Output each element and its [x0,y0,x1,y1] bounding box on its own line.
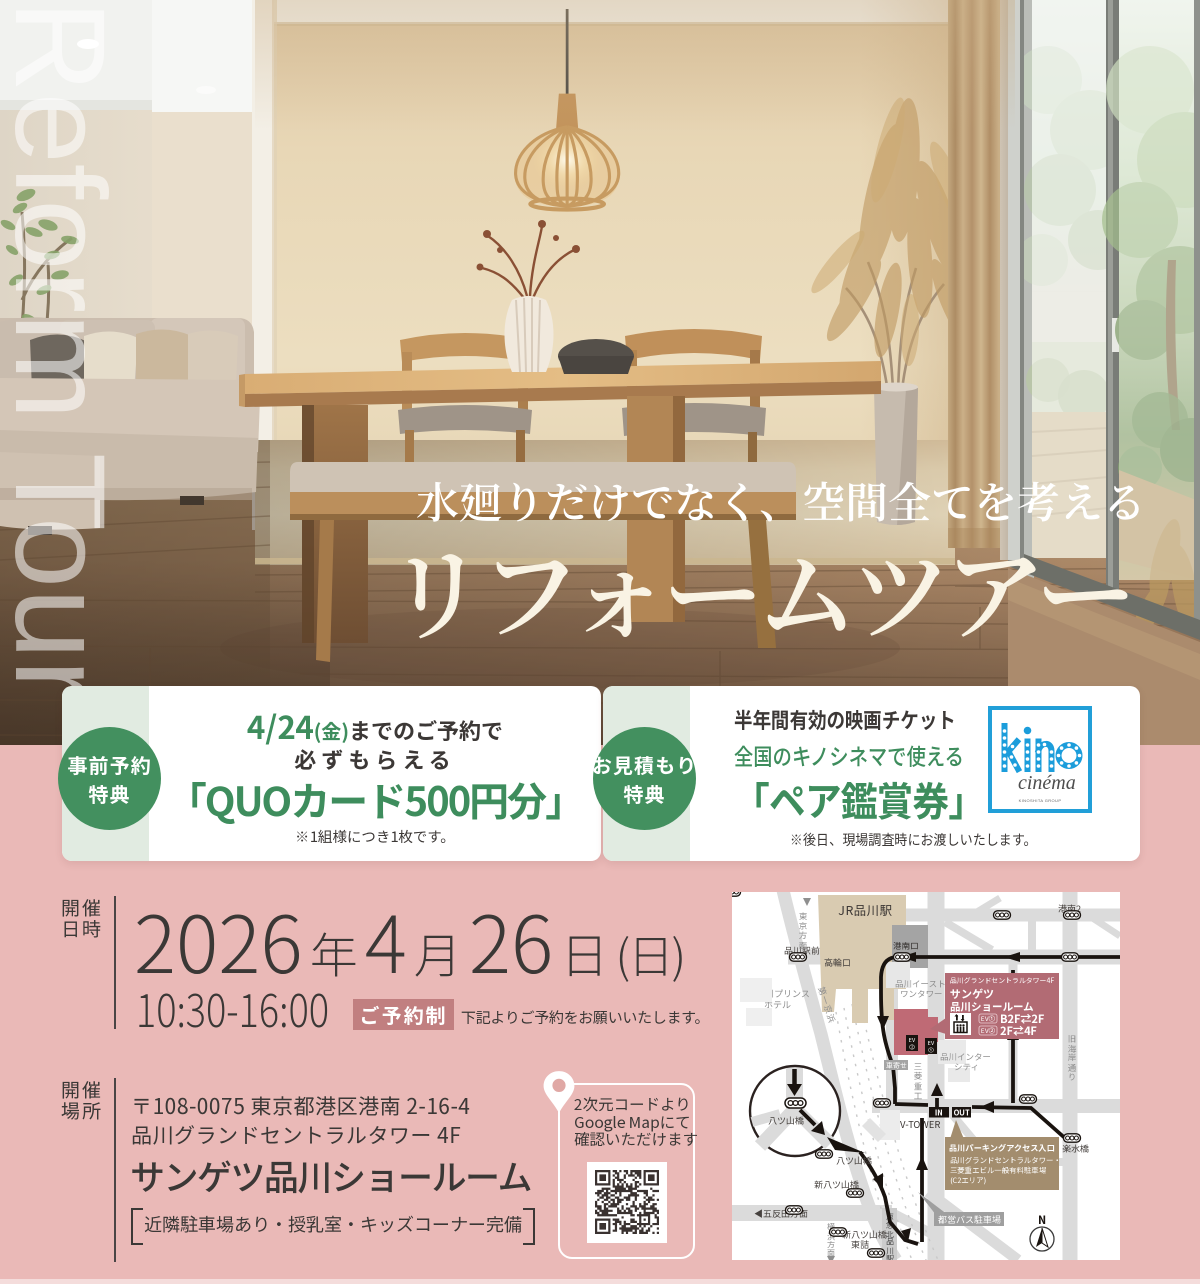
svg-text:三菱重工: 三菱重工 [912,1062,924,1100]
svg-text:2F⇄4F: 2F⇄4F [1000,1023,1037,1039]
svg-text:①: ① [928,1046,934,1054]
svg-text:八ツ山橋: 八ツ山橋 [836,1154,872,1167]
svg-text:KINOSHITA GROUP: KINOSHITA GROUP [1019,798,1062,803]
svg-text:N: N [1038,1212,1046,1228]
svg-text:都営バス駐車場: 都営バス駐車場 [938,1213,1001,1226]
svg-text:ワンタワー: ワンタワー [900,988,943,1000]
svg-text:OUT: OUT [953,1108,969,1119]
svg-text:EV②: EV② [981,1025,996,1035]
svg-text:IN: IN [935,1108,943,1119]
svg-text:港南口: 港南口 [893,940,919,952]
svg-text:旧海岸通り: 旧海岸通り [1066,1034,1078,1082]
svg-text:東詰: 東詰 [851,1238,869,1251]
svg-text:東京方面: 東京方面 [797,912,809,950]
svg-text:八ツ山橋: 八ツ山橋 [768,1114,804,1127]
svg-text:②: ② [909,1043,915,1051]
svg-text:cinéma: cinéma [1018,772,1076,794]
svg-text:JR品川駅: JR品川駅 [837,900,893,919]
svg-text:シティ: シティ [954,1061,979,1073]
svg-text:EV①: EV① [981,1013,996,1023]
svg-text:(C2エリア): (C2エリア) [950,1175,986,1186]
svg-text:高輪口: 高輪口 [824,956,851,969]
svg-text:品川パーキングアクセス入口: 品川パーキングアクセス入口 [949,1142,1055,1154]
svg-text:楽水橋: 楽水橋 [1062,1142,1089,1155]
svg-text:品川グランドセントラルタワー4F: 品川グランドセントラルタワー4F [950,975,1055,985]
svg-text:車寄せ: 車寄せ [886,1061,908,1071]
